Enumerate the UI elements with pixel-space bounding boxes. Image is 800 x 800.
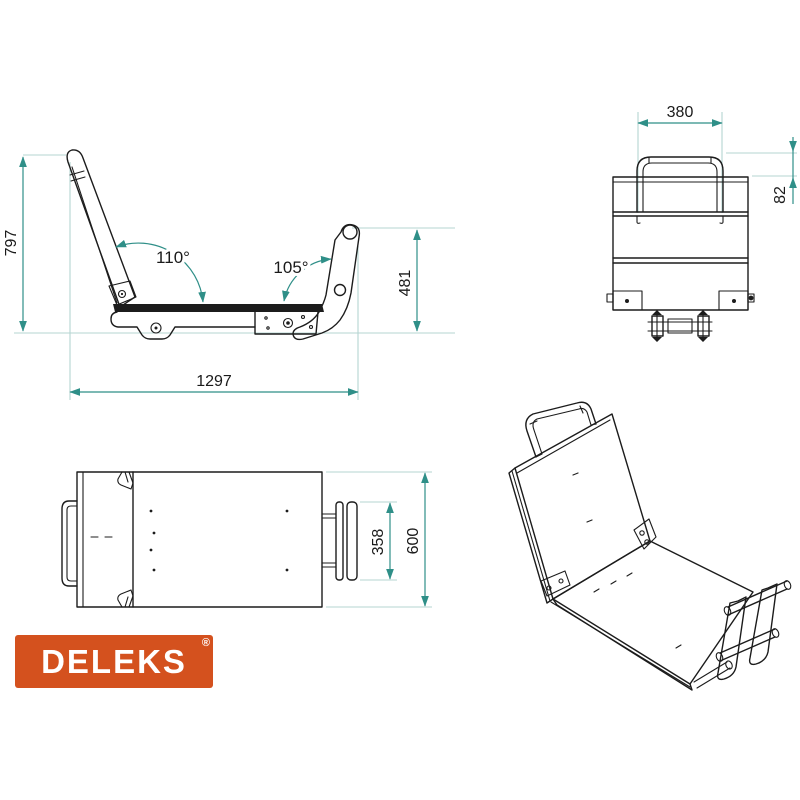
dim-arm-height: 481 — [397, 270, 414, 297]
isometric-view — [509, 402, 792, 690]
top-view: 358 600 — [62, 472, 432, 607]
iso-backrest — [509, 402, 656, 603]
brand-logo-text: DELEKS — [41, 643, 187, 681]
rear-view: 380 82 — [607, 104, 797, 342]
dim-overall-length: 1297 — [196, 373, 232, 390]
dim-backrest-angle: 110° — [156, 248, 190, 267]
top-view-part — [62, 472, 357, 607]
side-view: 797 1297 481 110° 105° — [3, 150, 455, 400]
technical-drawing-sheet: 797 1297 481 110° 105° — [0, 0, 800, 800]
rear-view-part — [607, 157, 754, 342]
iso-mount-frame — [694, 580, 792, 688]
dim-overall-depth: 600 — [405, 528, 422, 555]
dim-handle-width: 380 — [667, 104, 694, 121]
side-handle-outline — [62, 501, 77, 586]
handle-outline — [637, 157, 723, 212]
brand-logo: DELEKS ® — [15, 635, 213, 688]
side-view-part — [67, 150, 359, 340]
dim-arm-angle: 105° — [273, 258, 308, 277]
dim-overall-height: 797 — [3, 230, 20, 257]
dim-handle-height: 82 — [772, 186, 789, 204]
registered-trademark-icon: ® — [202, 637, 210, 649]
dim-frame-width: 358 — [370, 529, 387, 556]
iso-base — [551, 541, 753, 690]
